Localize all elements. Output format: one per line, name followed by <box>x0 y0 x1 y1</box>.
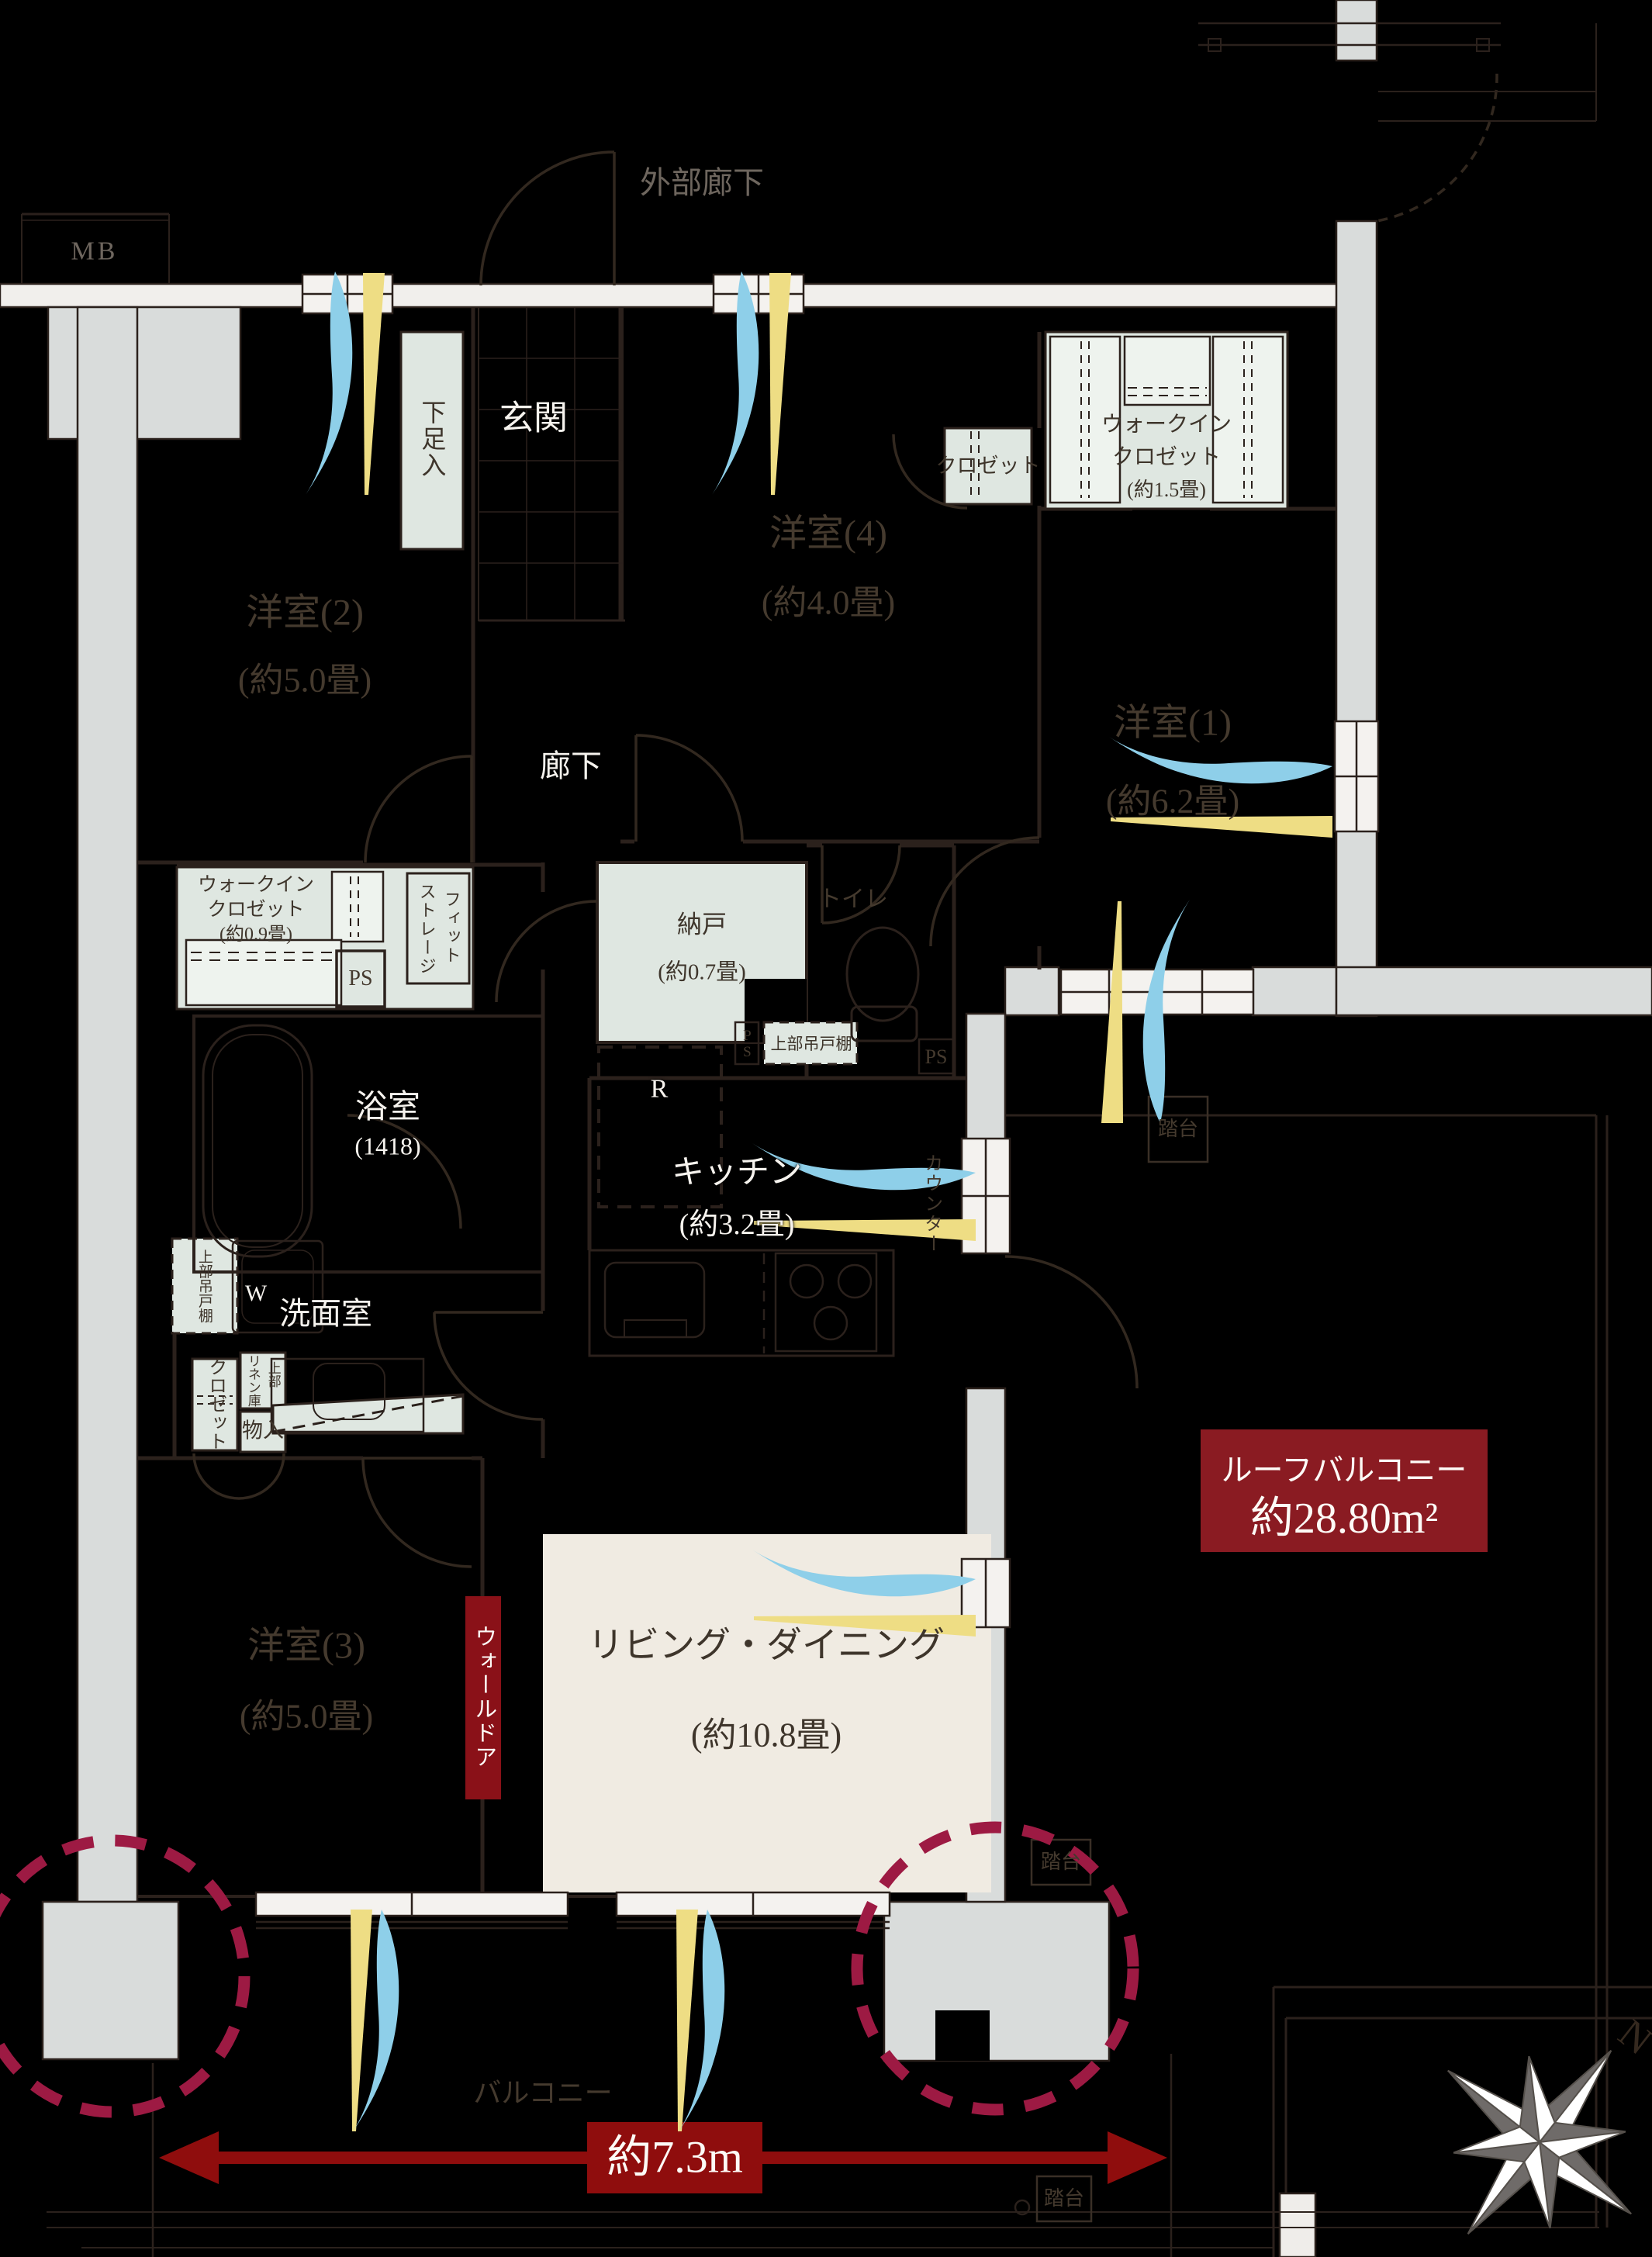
label-storeroom-name: 納戸 <box>677 911 727 939</box>
label-living-name: リビング・ダイニング <box>588 1626 945 1667</box>
label-entrance: 玄関 <box>499 399 568 439</box>
label-mb: MB <box>71 236 119 266</box>
label-bath-name: 浴室 <box>355 1089 420 1126</box>
label-room3-size: (約5.0畳) <box>240 1698 373 1737</box>
floor-plan: N 外部廊下 MB 玄関 下足入 廊下 洋室(2) (約5.0畳) 洋室(4) … <box>0 0 1652 2257</box>
top-wall-band <box>0 284 1353 307</box>
label-room1-size: (約6.2畳) <box>1106 783 1239 822</box>
label-washer: W <box>245 1281 267 1308</box>
label-wic09-l1: ウォークイン <box>198 875 314 897</box>
label-room1-name: 洋室(1) <box>1114 701 1232 744</box>
label-hallway: 廊下 <box>540 748 602 784</box>
label-living-size: (約10.8畳) <box>691 1716 842 1756</box>
floor-plan-graphics: N <box>0 0 1652 2257</box>
label-width-dimension: 約7.3m <box>607 2132 743 2184</box>
label-room2-name: 洋室(2) <box>246 591 364 634</box>
label-balcony: バルコニー <box>473 2077 612 2109</box>
label-kitchen-name: キッチン <box>672 1154 802 1191</box>
label-step-bottom: 踏台 <box>1044 2187 1084 2210</box>
label-storage-small: 物入 <box>242 1419 284 1443</box>
label-refrigerator: R <box>651 1073 669 1104</box>
label-fit-storage-l1: フィット <box>441 890 461 965</box>
right-wall-a <box>1336 0 1377 60</box>
label-wic09-l2: クロゼット <box>207 900 304 922</box>
label-storeroom-size: (約0.7畳) <box>658 959 746 985</box>
label-ps-small: PS <box>738 1028 755 1060</box>
background <box>0 0 1652 2257</box>
label-closet-vertical: クロゼット <box>204 1357 226 1450</box>
label-counter: カウンター <box>920 1153 942 1254</box>
label-linen-upper: 上部 <box>265 1361 281 1388</box>
label-room4-size: (約4.0畳) <box>762 584 895 624</box>
label-room4-name: 洋室(4) <box>769 512 887 555</box>
label-wic09-l3: (約0.9畳) <box>219 925 292 946</box>
label-wall-door: ウォールドア <box>470 1625 496 1769</box>
label-ps2: PS <box>925 1046 948 1069</box>
label-ps: PS <box>348 966 372 991</box>
label-roof-balcony-name: ルーフバルコニー <box>1222 1453 1467 1488</box>
left-wall <box>78 307 137 1902</box>
label-wic15-l2: クロゼット <box>1112 445 1221 470</box>
roof-wall-a <box>1005 967 1059 1015</box>
label-wic15-l1: ウォークイン <box>1101 413 1232 437</box>
label-shoe-cabinet: 下足入 <box>418 399 447 479</box>
label-wic15-l3: (約1.5畳) <box>1127 479 1206 502</box>
right-wall-b <box>1336 221 1377 728</box>
label-kitchen-size: (約3.2畳) <box>679 1208 795 1243</box>
pillar-notch <box>935 2010 990 2061</box>
label-room2-size: (約5.0畳) <box>238 662 372 701</box>
label-bath-size: (1418) <box>354 1132 420 1161</box>
label-room3-name: 洋室(3) <box>247 1624 365 1667</box>
label-upper-cabinet-kitchen: 上部吊戸棚 <box>771 1035 852 1053</box>
roof-wall-b <box>1253 967 1336 1015</box>
label-roof-balcony-area: 約28.80m² <box>1250 1494 1438 1543</box>
label-fit-storage-l2: ストレージ <box>416 883 436 976</box>
pillar-bottom-left <box>43 1902 178 2059</box>
label-linen: リネン庫 <box>245 1354 261 1407</box>
label-closet: クロゼット <box>936 454 1041 478</box>
label-exterior-corridor: 外部廊下 <box>640 165 764 201</box>
roof-wall-c <box>1336 967 1652 1015</box>
label-step-roof: 踏台 <box>1158 1118 1198 1141</box>
pillar-bottom-right <box>884 1902 1109 2061</box>
label-step-mid: 踏台 <box>1041 1851 1081 1874</box>
label-upper-cabinet-wash: 上部吊戸棚 <box>195 1249 213 1323</box>
label-washroom: 洗面室 <box>279 1296 372 1332</box>
label-toilet: トイレ <box>818 887 888 914</box>
east-wall-a <box>966 1014 1005 1140</box>
